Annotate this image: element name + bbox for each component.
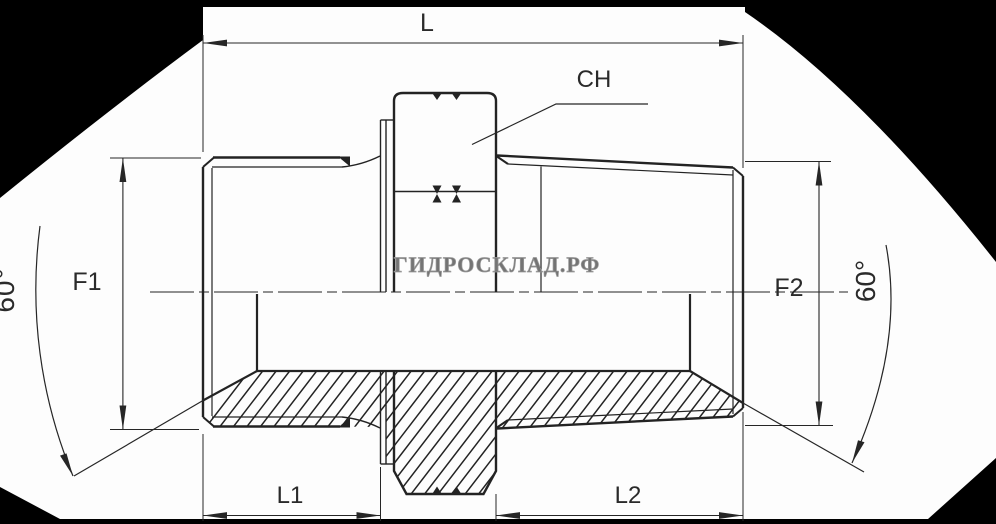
svg-text:L: L — [420, 9, 434, 37]
svg-text:F2: F2 — [774, 274, 803, 302]
svg-text:L1: L1 — [277, 482, 304, 509]
svg-text:60°: 60° — [0, 267, 20, 312]
svg-text:ГИДРОСКЛАД.РФ: ГИДРОСКЛАД.РФ — [394, 252, 601, 277]
svg-text:L2: L2 — [615, 482, 642, 509]
svg-text:CH: CH — [577, 66, 612, 93]
svg-text:F1: F1 — [72, 268, 101, 296]
svg-text:60°: 60° — [850, 260, 881, 302]
